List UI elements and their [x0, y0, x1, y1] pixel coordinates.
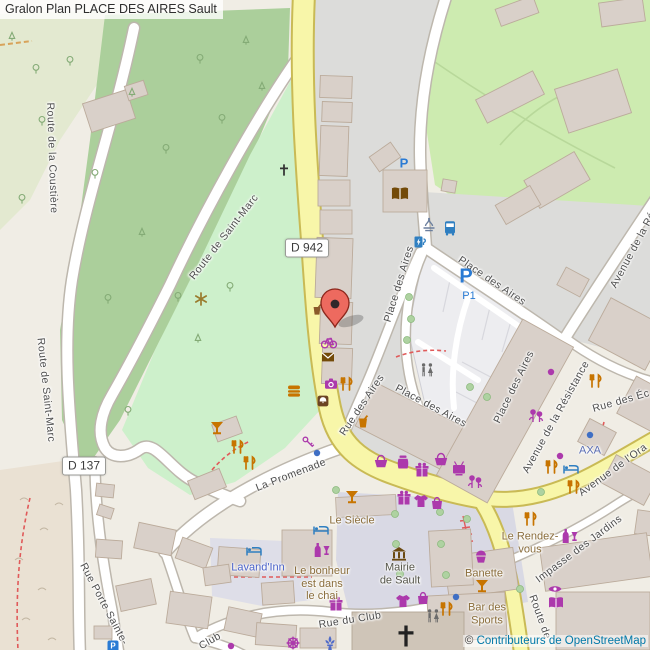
jar-icon: [398, 456, 409, 469]
fast-food-icon: [288, 386, 300, 397]
charging-station-icon: [415, 237, 426, 248]
blue-dot-icon: [587, 432, 593, 438]
bar-icon: [476, 580, 488, 592]
restaurant-icon: [441, 603, 451, 615]
viewpoint-icon: [196, 293, 206, 305]
bell-icon: [318, 396, 329, 407]
florist-icon: [530, 410, 543, 422]
blue-dot-icon: [314, 450, 320, 456]
restaurant-icon: [590, 375, 600, 387]
hotel-icon: [247, 548, 261, 556]
restaurant-icon: [525, 513, 535, 525]
key-icon: [303, 437, 314, 447]
map-canvas[interactable]: Route de la Coustière Route de Saint-Mar…: [0, 0, 650, 650]
restaurant-icon: [568, 481, 578, 493]
hotel-icon: [314, 527, 328, 535]
photo-icon: [325, 379, 337, 389]
restaurant-icon: [546, 461, 556, 473]
bike-icon: [322, 339, 337, 348]
cafe-icon: [359, 415, 368, 427]
restaurant-icon: [232, 441, 242, 453]
optician-icon: [549, 586, 562, 591]
townhall-icon: [392, 547, 406, 561]
hotel-icon: [564, 466, 578, 474]
wayside-cross-icon: [280, 164, 288, 175]
fleur-icon: [326, 636, 335, 650]
restaurant-icon: [341, 378, 351, 390]
shop-icon: [557, 453, 563, 459]
copyright-symbol: ©: [465, 635, 473, 647]
clothes-icon: [396, 595, 410, 607]
toilets-icon: [422, 363, 433, 376]
shop-icon: [228, 643, 234, 649]
fountain-icon: [424, 218, 435, 231]
bar-icon: [211, 422, 223, 434]
wine-shop-icon: [315, 543, 330, 557]
book-shop-icon: [549, 597, 563, 608]
attribution: © Contributeurs de OpenStreetMap: [463, 635, 648, 647]
toilets-icon: [428, 609, 439, 622]
library-icon: [392, 187, 408, 199]
gift-icon: [416, 463, 429, 477]
shop-icon: [548, 369, 554, 375]
restaurant-icon: [244, 457, 254, 469]
wheel-icon: [287, 637, 300, 650]
bag-icon: [432, 498, 442, 509]
church-cross-icon: [399, 626, 414, 647]
bar-icon: [346, 491, 358, 503]
gift-icon: [398, 491, 411, 505]
page-title: Gralon Plan PLACE DES AIRES Sault: [0, 0, 223, 19]
bag-icon: [418, 593, 428, 604]
clothes-icon: [414, 495, 428, 507]
gift-icon: [330, 597, 343, 611]
marker-icon: [319, 287, 373, 331]
bakery-icon: [476, 551, 486, 563]
basket-icon: [435, 454, 447, 466]
blue-dot-icon: [453, 594, 459, 600]
post-icon: [322, 353, 334, 362]
florist-icon: [469, 476, 482, 488]
osm-attribution-link[interactable]: Contributeurs de OpenStreetMap: [477, 635, 646, 647]
basket-icon: [375, 456, 387, 468]
bus-stop-icon: [445, 221, 455, 235]
tv-icon: [453, 462, 465, 476]
wine-shop-icon: [563, 529, 578, 543]
